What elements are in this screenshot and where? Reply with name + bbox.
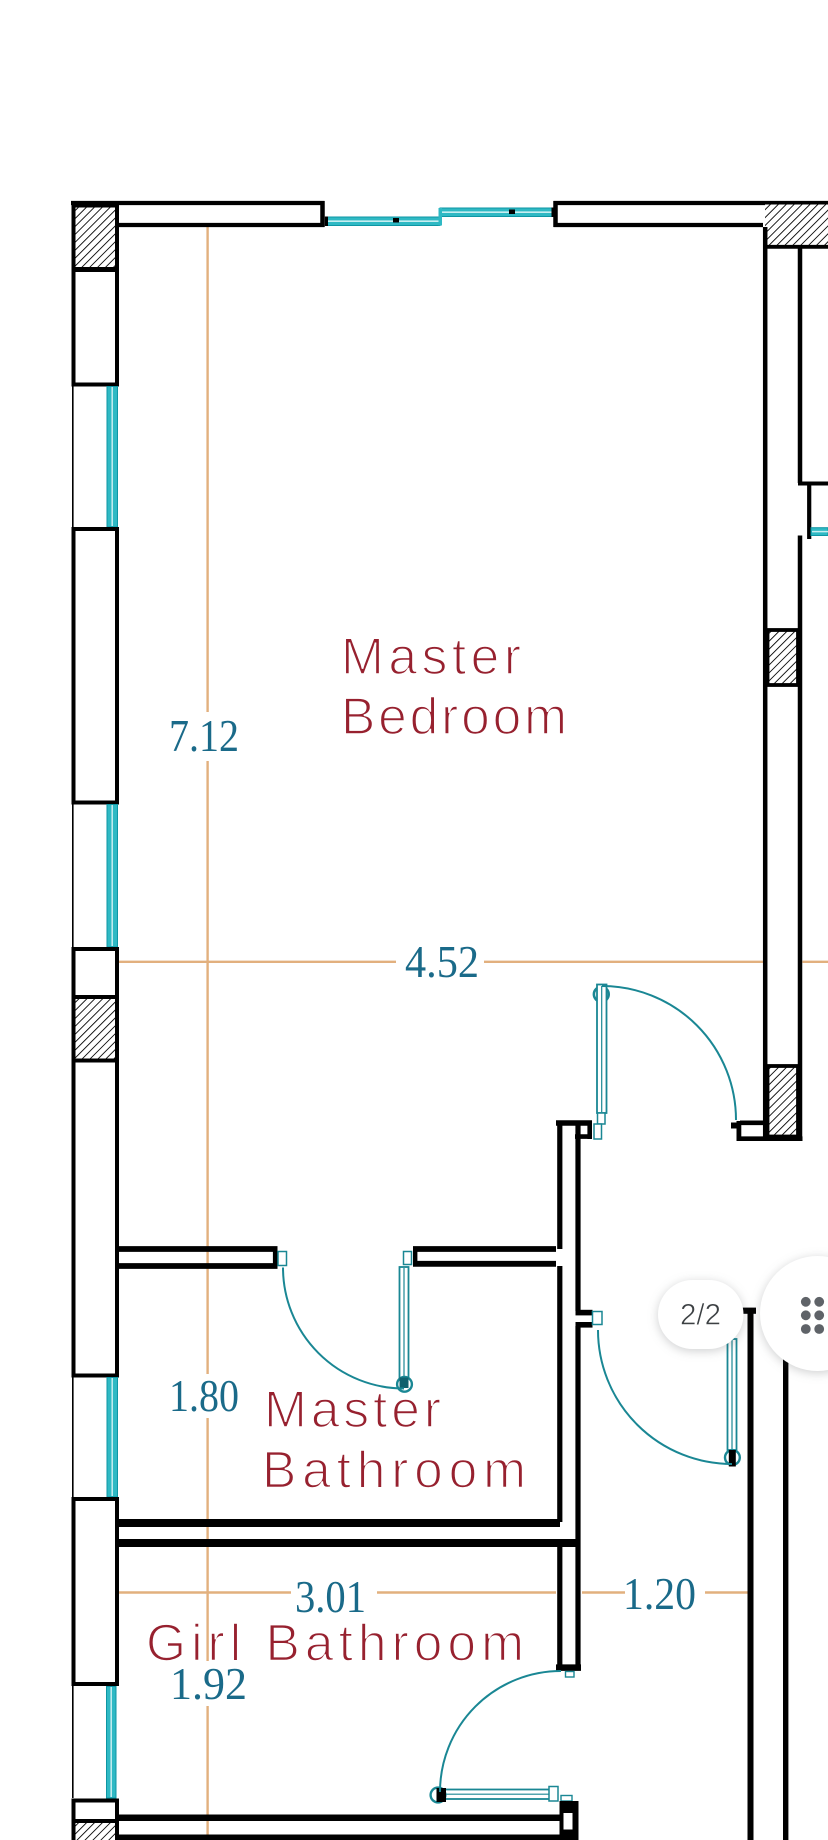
svg-text:Master: Master <box>341 627 525 685</box>
svg-text:Bathroom: Bathroom <box>262 1441 530 1499</box>
svg-text:7.12: 7.12 <box>169 710 239 761</box>
svg-text:1.20: 1.20 <box>623 1568 696 1619</box>
svg-text:4.52: 4.52 <box>405 936 479 987</box>
svg-text:Girl Bathroom: Girl Bathroom <box>146 1614 528 1672</box>
svg-text:2/2: 2/2 <box>680 1299 721 1332</box>
svg-text:Master: Master <box>264 1380 445 1438</box>
svg-text:1.80: 1.80 <box>169 1370 239 1421</box>
svg-text:Bedroom: Bedroom <box>341 687 571 745</box>
